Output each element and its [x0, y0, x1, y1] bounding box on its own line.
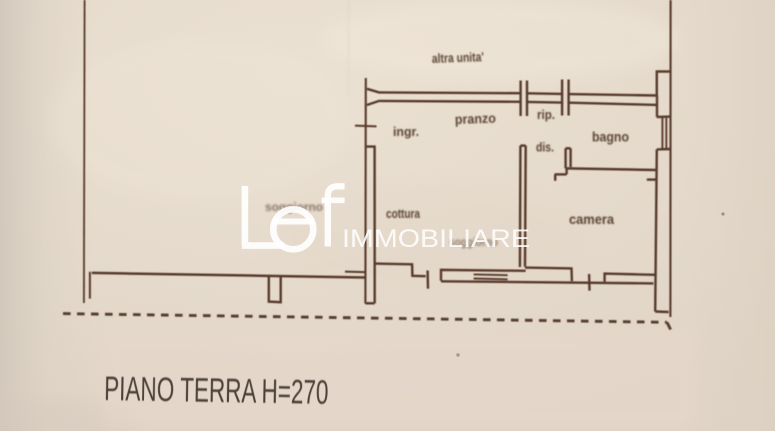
svg-text:ingr.: ingr.: [393, 124, 419, 139]
svg-text:bagno: bagno: [592, 129, 629, 145]
svg-text:cottura: cottura: [386, 206, 421, 221]
svg-text:altra unita': altra unita': [432, 49, 484, 66]
svg-text:PIANO TERRA H=270: PIANO TERRA H=270: [104, 371, 329, 413]
svg-text:dis.: dis.: [536, 140, 554, 155]
svg-text:pranzo: pranzo: [455, 111, 496, 127]
svg-text:IMMOBILIARE: IMMOBILIARE: [342, 225, 530, 253]
svg-text:rip.: rip.: [537, 107, 555, 122]
svg-text:camera: camera: [569, 212, 614, 227]
